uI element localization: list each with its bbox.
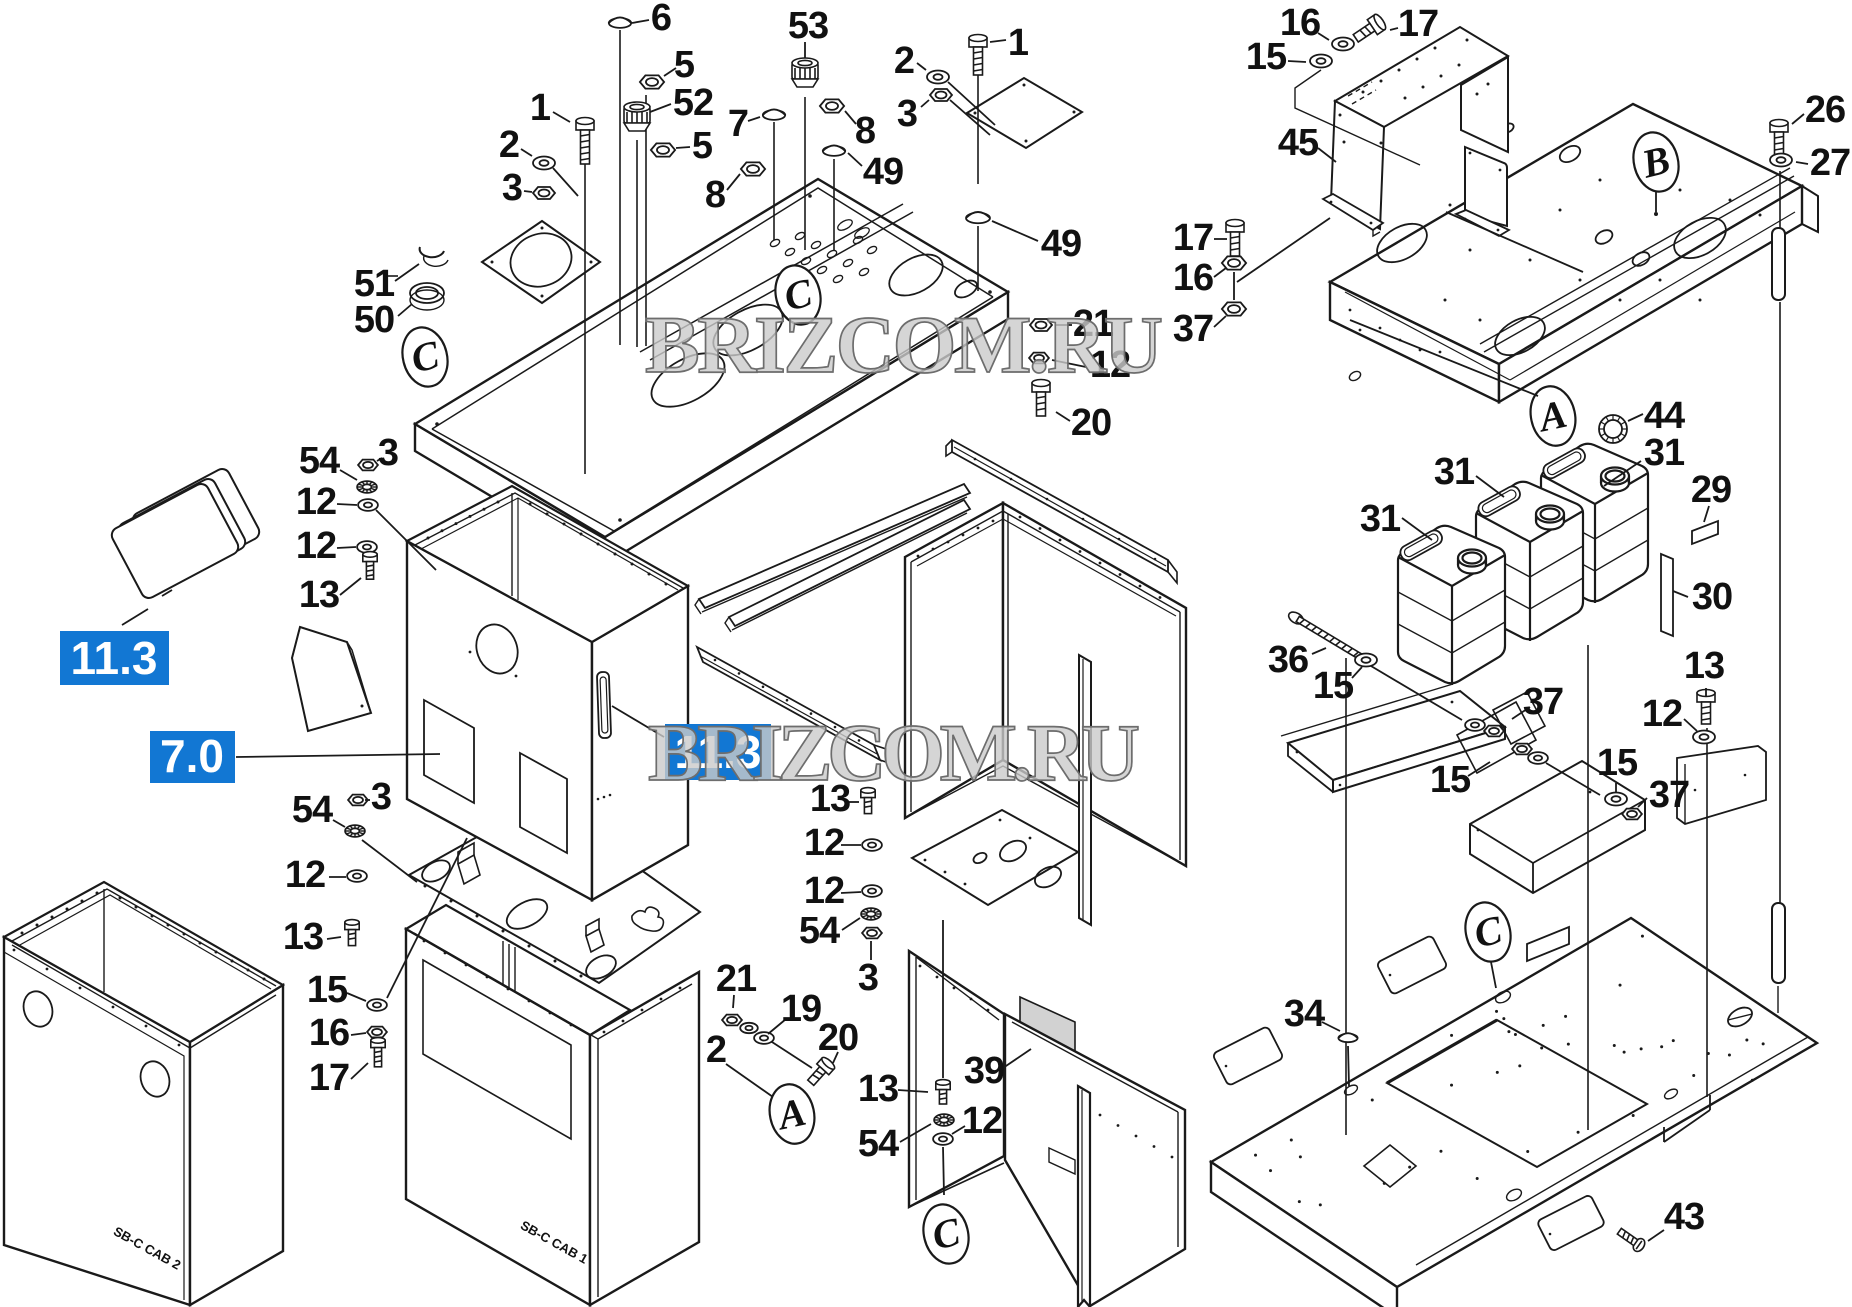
svg-text:50: 50 xyxy=(354,299,394,341)
svg-text:3: 3 xyxy=(378,432,398,474)
svg-text:54: 54 xyxy=(292,789,333,831)
svg-text:8: 8 xyxy=(855,110,875,152)
svg-text:49: 49 xyxy=(863,151,903,193)
svg-text:13: 13 xyxy=(858,1068,898,1110)
svg-text:31: 31 xyxy=(1644,432,1685,474)
svg-text:5: 5 xyxy=(674,44,695,86)
svg-text:12: 12 xyxy=(285,854,325,896)
svg-text:17: 17 xyxy=(309,1057,349,1099)
svg-text:21: 21 xyxy=(716,958,757,1000)
svg-text:15: 15 xyxy=(1597,742,1638,784)
svg-text:15: 15 xyxy=(1246,36,1287,78)
svg-text:30: 30 xyxy=(1692,576,1732,618)
svg-text:54: 54 xyxy=(299,440,340,482)
svg-text:17: 17 xyxy=(1398,3,1438,45)
svg-text:2: 2 xyxy=(499,124,519,166)
svg-text:3: 3 xyxy=(502,167,522,209)
svg-text:5: 5 xyxy=(692,125,713,167)
svg-text:15: 15 xyxy=(307,969,348,1011)
svg-text:39: 39 xyxy=(964,1050,1004,1092)
svg-text:BRIZCOM.RU: BRIZCOM.RU xyxy=(648,707,1140,798)
svg-text:36: 36 xyxy=(1268,639,1308,681)
svg-text:53: 53 xyxy=(788,5,828,47)
svg-text:17: 17 xyxy=(1173,217,1213,259)
svg-text:15: 15 xyxy=(1313,665,1354,707)
svg-text:2: 2 xyxy=(706,1029,726,1071)
svg-text:54: 54 xyxy=(858,1123,899,1165)
svg-text:27: 27 xyxy=(1810,142,1850,184)
svg-text:7: 7 xyxy=(728,103,748,145)
svg-text:2: 2 xyxy=(894,40,914,82)
svg-text:8: 8 xyxy=(705,174,725,216)
svg-text:44: 44 xyxy=(1644,395,1685,437)
svg-text:31: 31 xyxy=(1360,498,1401,540)
svg-text:34: 34 xyxy=(1284,993,1325,1035)
svg-text:12: 12 xyxy=(296,525,336,567)
svg-text:12: 12 xyxy=(804,822,844,864)
svg-text:26: 26 xyxy=(1805,89,1845,131)
svg-text:12: 12 xyxy=(962,1100,1002,1142)
svg-text:54: 54 xyxy=(799,910,840,952)
svg-text:37: 37 xyxy=(1649,774,1689,816)
svg-text:43: 43 xyxy=(1664,1196,1704,1238)
svg-text:BRIZCOM.RU: BRIZCOM.RU xyxy=(645,299,1163,390)
svg-text:31: 31 xyxy=(1434,451,1475,493)
svg-text:49: 49 xyxy=(1041,223,1081,265)
svg-text:37: 37 xyxy=(1173,308,1213,350)
svg-text:12: 12 xyxy=(296,481,336,523)
svg-text:1: 1 xyxy=(1008,22,1029,64)
svg-text:12: 12 xyxy=(1642,693,1682,735)
svg-text:15: 15 xyxy=(1430,759,1471,801)
svg-text:13: 13 xyxy=(1684,645,1724,687)
svg-text:1: 1 xyxy=(530,87,551,129)
svg-text:37: 37 xyxy=(1523,681,1563,723)
svg-text:13: 13 xyxy=(299,574,339,616)
svg-text:16: 16 xyxy=(1173,257,1213,299)
svg-text:3: 3 xyxy=(858,957,878,999)
svg-text:13: 13 xyxy=(283,916,323,958)
svg-text:45: 45 xyxy=(1278,122,1319,164)
svg-text:52: 52 xyxy=(673,82,713,124)
svg-text:16: 16 xyxy=(309,1012,349,1054)
svg-text:6: 6 xyxy=(651,0,671,39)
svg-text:20: 20 xyxy=(1071,402,1111,444)
svg-text:19: 19 xyxy=(781,988,821,1030)
svg-text:3: 3 xyxy=(897,93,917,135)
svg-text:12: 12 xyxy=(804,870,844,912)
svg-text:20: 20 xyxy=(818,1017,858,1059)
svg-text:7.0: 7.0 xyxy=(160,730,224,782)
svg-text:11.3: 11.3 xyxy=(71,632,158,684)
svg-text:3: 3 xyxy=(371,776,391,818)
svg-text:29: 29 xyxy=(1691,469,1731,511)
